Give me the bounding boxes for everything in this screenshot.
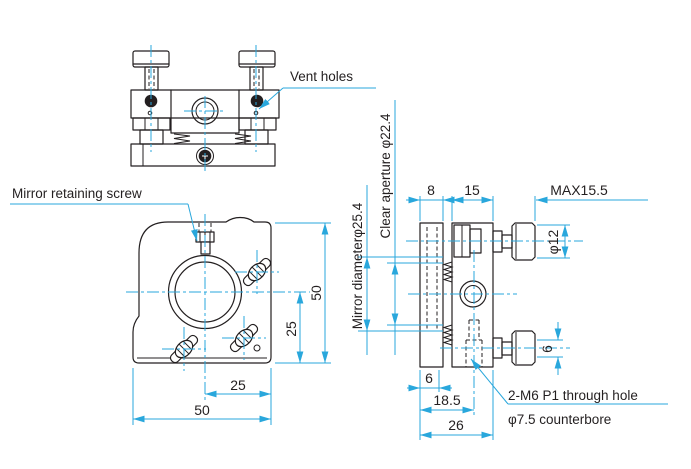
- spring-right: [235, 134, 251, 144]
- front-view: 50 25 25 50: [126, 214, 331, 425]
- technical-drawing: 50 25 25 50: [0, 0, 691, 469]
- label-mirror-diameter: Mirror diameterφ25.4: [350, 202, 365, 329]
- label-through-hole: 2-M6 P1 through hole: [508, 388, 638, 403]
- dim-center-to-bottom-25: 25: [283, 321, 299, 337]
- body-plate: [452, 223, 493, 367]
- annotations: Vent holes Mirror retaining screw 2-M6 P…: [10, 69, 668, 427]
- mirror-mount-drawing: 50 25 25 50: [0, 0, 691, 469]
- dim-depth-26: 26: [448, 417, 464, 433]
- dim-hole-offset-18-5: 18.5: [433, 392, 460, 408]
- m6-leader: [471, 359, 508, 404]
- label-mirror-retaining-screw: Mirror retaining screw: [12, 186, 142, 201]
- mirror-plate: [420, 223, 443, 367]
- top-view: [131, 45, 279, 172]
- spring-left: [174, 134, 190, 144]
- dim-height-50: 50: [308, 285, 324, 301]
- label-clear-aperture: Clear aperture φ22.4: [378, 113, 393, 239]
- dim-max-protrusion: MAX15.5: [550, 182, 608, 198]
- socket-screw-right: [251, 95, 264, 108]
- spring-lower: [444, 325, 452, 345]
- dim-front-plate-8: 8: [427, 182, 435, 198]
- dim-body-15: 15: [464, 182, 480, 198]
- dim-knob-travel-6: 6: [539, 345, 555, 353]
- dim-center-to-right-25: 25: [230, 377, 246, 393]
- label-counterbore: φ7.5 counterbore: [508, 412, 611, 427]
- dim-width-50: 50: [194, 402, 210, 418]
- dim-knob-diameter: φ12: [545, 229, 561, 254]
- dim-mirror-recess-6: 6: [425, 370, 433, 386]
- label-vent-holes: Vent holes: [290, 69, 353, 84]
- spring-upper: [444, 262, 452, 282]
- pilot-hole: [254, 345, 260, 351]
